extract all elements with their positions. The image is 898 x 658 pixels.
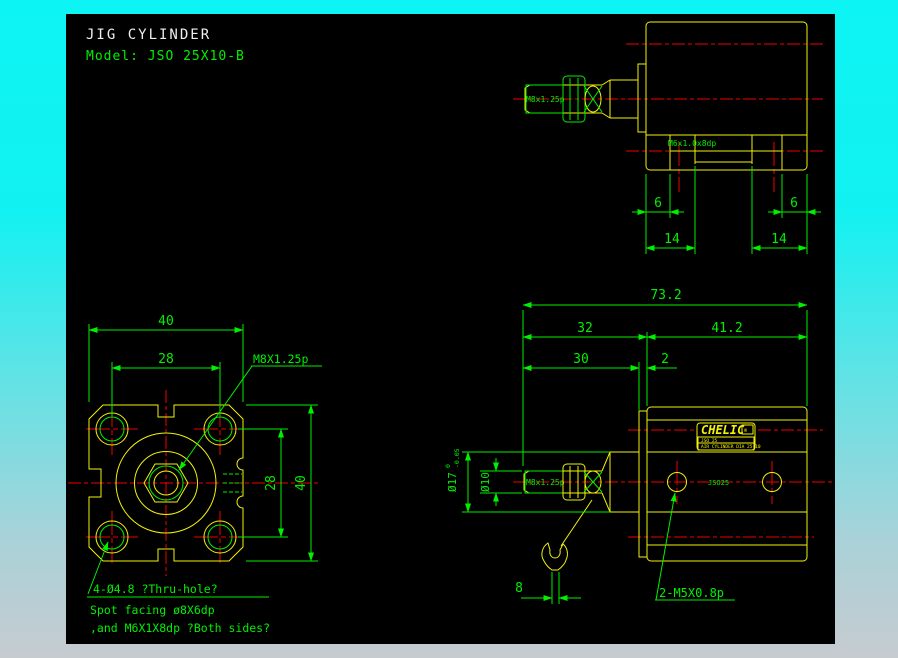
drawing-header: JIG CYLINDER Model: JSO 25X10-B (86, 27, 245, 64)
dim-40-top: 40 (158, 314, 174, 329)
dim-28-right: 28 (264, 475, 279, 491)
dim-32: 32 (577, 321, 593, 336)
nameplate-line2: AIR CYLINDER DIA 25 10 (701, 444, 761, 450)
top-foot-thread-label: M6x1.0x8dp (668, 139, 716, 148)
front-view-dimensions: 40 28 28 40 M8X1.25p 4-Ø4.8 ?Thru-hole? … (87, 314, 322, 635)
dim-2: 2 (661, 352, 669, 367)
dim-14-right: 14 (771, 232, 787, 247)
dim-dia-10: Ø10 (479, 472, 492, 492)
dim-40-right: 40 (294, 475, 309, 491)
nameplate: CHELIC ® JSO 25 AIR CYLINDER DIA 25 10 (697, 423, 761, 450)
body-marking: JSO25 (708, 479, 729, 487)
note-thru-hole: 4-Ø4.8 ?Thru-hole? (93, 582, 218, 596)
top-side-view: M8x1.25p M6x1.0x8dp 6 6 14 14 (513, 22, 823, 254)
right-side-view: JSO25 CHELIC ® JSO 25 AIR CYLINDER DIA 2… (444, 288, 835, 604)
front-view: 40 28 28 40 M8X1.25p 4-Ø4.8 ?Thru-hole? … (68, 314, 322, 635)
cad-drawing: JIG CYLINDER Model: JSO 25X10-B (66, 14, 835, 644)
dia-17-tol-lower: -0.05 (453, 448, 461, 468)
dim-8: 8 (515, 581, 523, 596)
wrench-icon (542, 500, 592, 570)
dim-6-left: 6 (654, 196, 662, 211)
note-spot-facing: Spot facing ø8X6dp (90, 603, 215, 617)
note-side-thread: ,and M6X1X8dp ?Both sides? (90, 621, 270, 635)
drawing-title: JIG CYLINDER (86, 27, 211, 43)
top-view-dimensions: 6 6 14 14 (632, 166, 821, 254)
dim-30: 30 (573, 352, 589, 367)
dim-41-2: 41.2 (711, 321, 742, 336)
drawing-model: Model: JSO 25X10-B (86, 49, 245, 64)
front-rod-thread-label: M8X1.25p (253, 352, 308, 366)
nameplate-line1: JSO 25 (701, 438, 718, 444)
dim-14-left: 14 (664, 232, 680, 247)
dim-6-right: 6 (790, 196, 798, 211)
note-port-thread: 2-M5X0.8p (659, 586, 724, 600)
dia-17-tol-upper: 0 (444, 464, 452, 468)
side-rod-thread-label: M8x1.25p (526, 478, 565, 487)
top-rod-thread-label: M8x1.25p (526, 95, 565, 104)
dim-dia-17: Ø17 (446, 472, 459, 492)
brand-label: CHELIC (701, 423, 745, 437)
dim-28-top: 28 (158, 352, 174, 367)
dim-73-2: 73.2 (650, 288, 681, 303)
drawing-canvas: JIG CYLINDER Model: JSO 25X10-B (66, 14, 835, 644)
brand-mark: ® (744, 428, 748, 434)
